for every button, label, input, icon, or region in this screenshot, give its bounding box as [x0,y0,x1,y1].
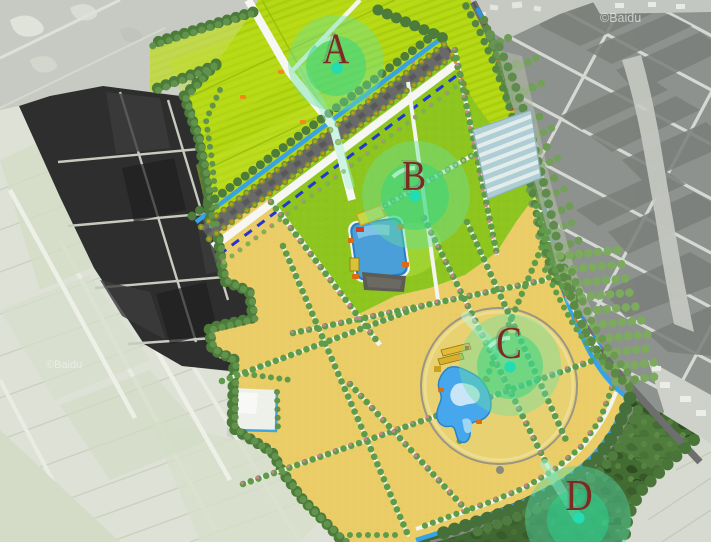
svg-text:©Baidu: ©Baidu [600,11,641,25]
svg-text:A: A [323,24,350,72]
svg-text:C: C [496,319,522,368]
svg-text:D: D [565,470,592,519]
svg-text:B: B [402,154,426,200]
svg-text:©Baidu: ©Baidu [46,359,82,371]
